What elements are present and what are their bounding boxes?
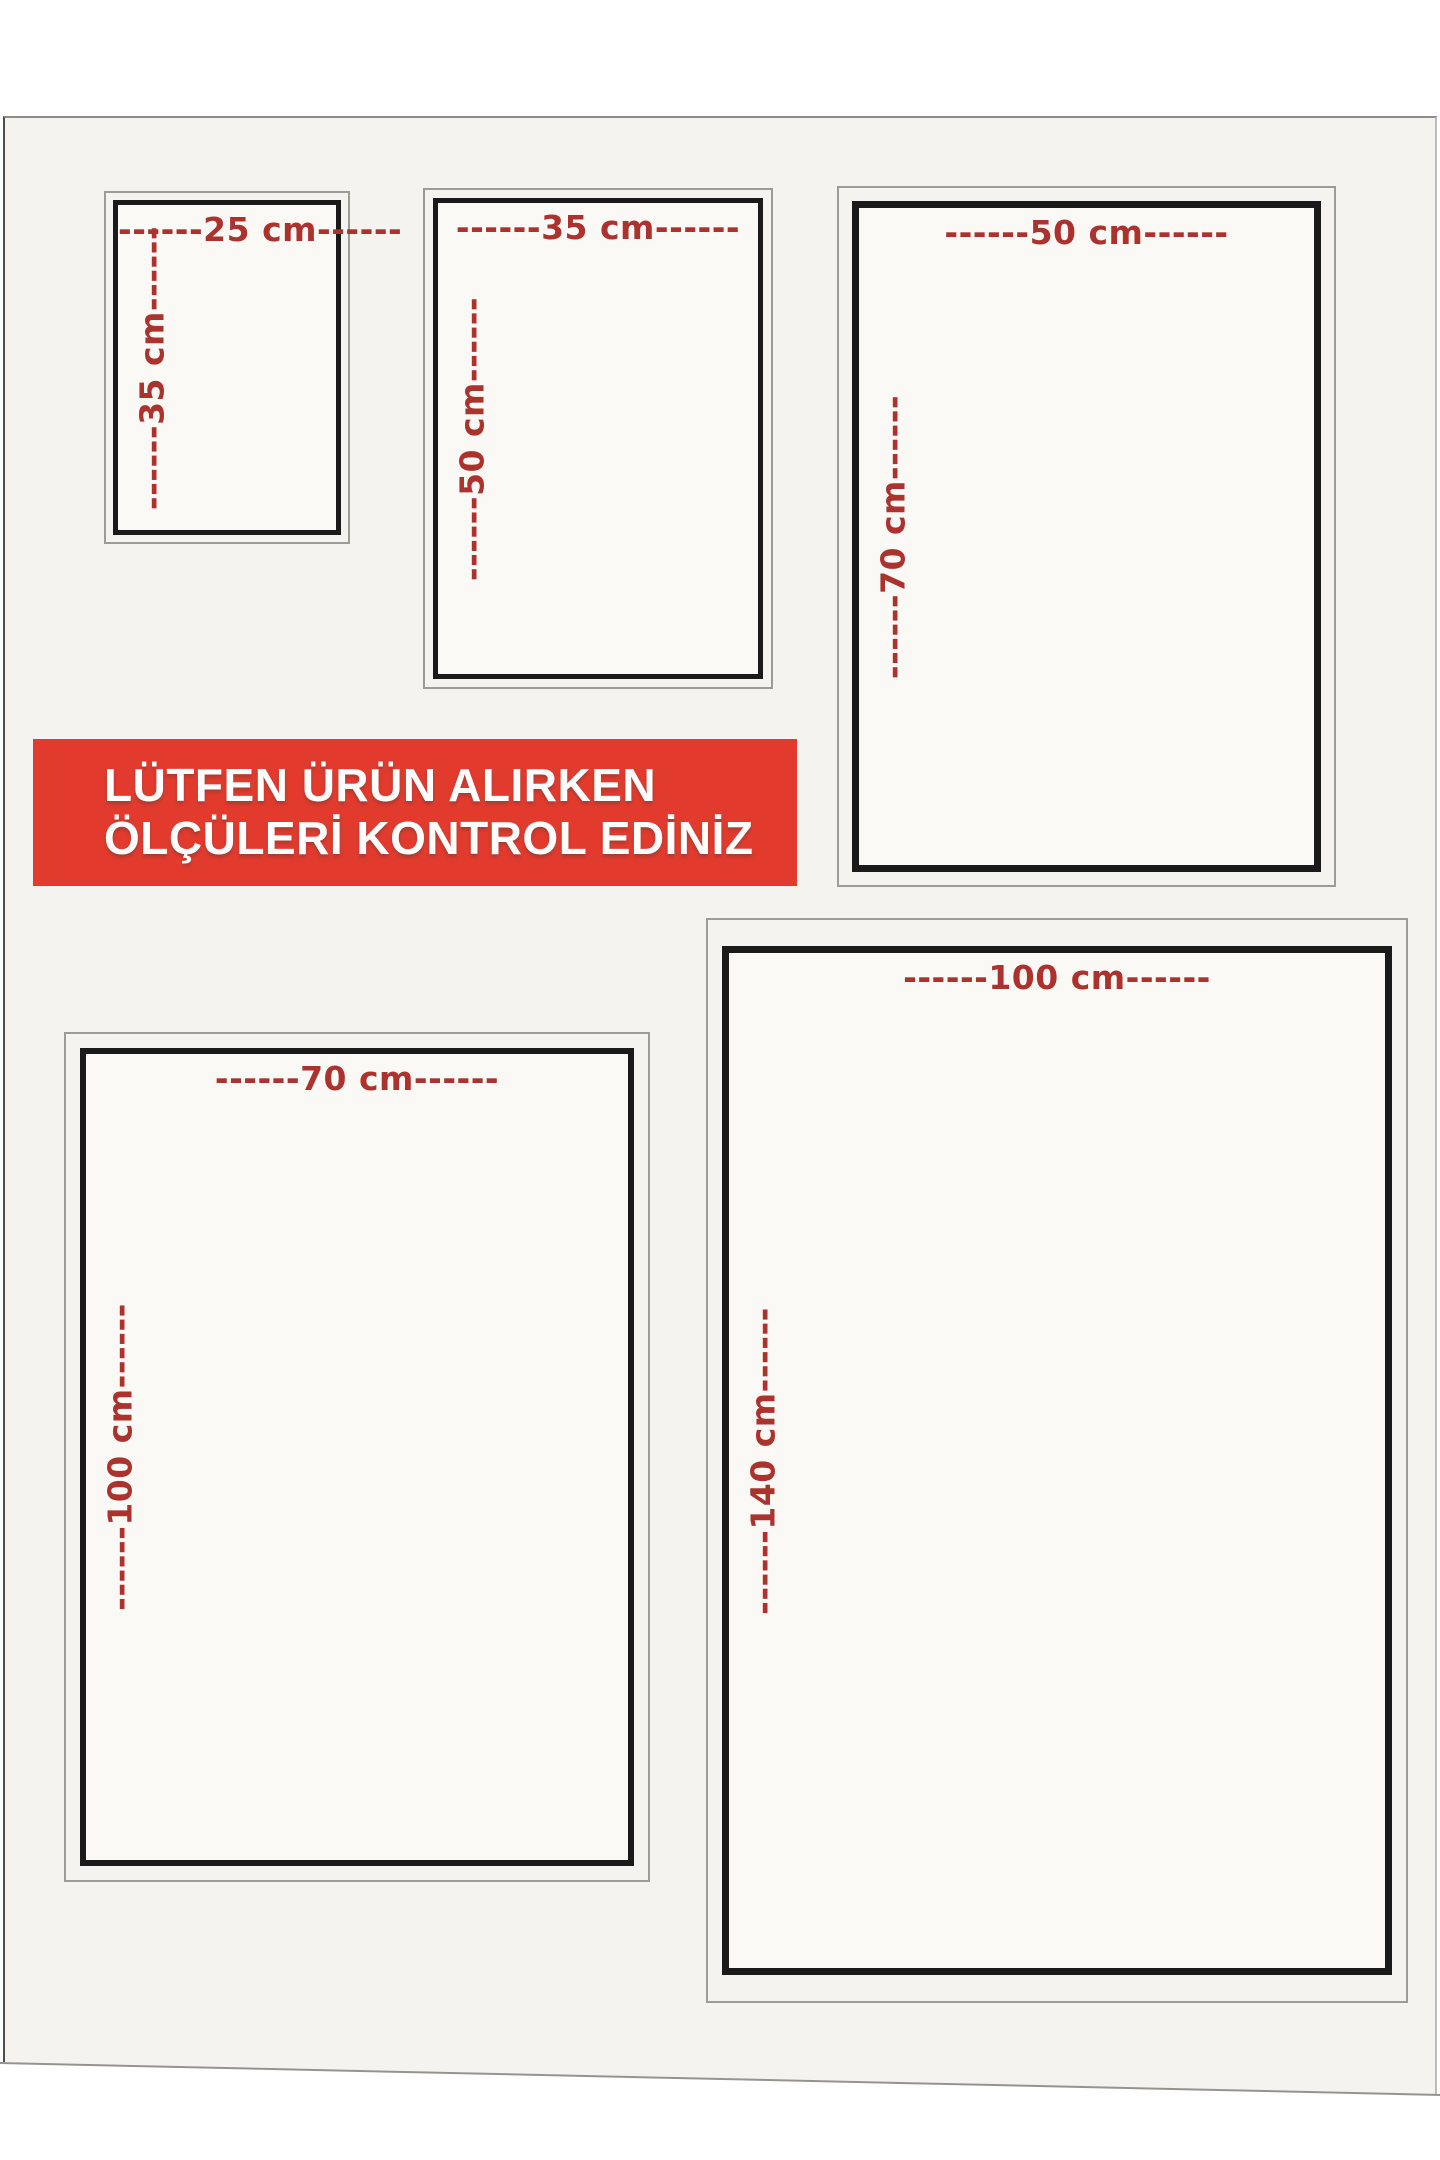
height-label: ------50 cm------ — [453, 296, 492, 580]
width-label: ------35 cm------ — [438, 203, 758, 247]
warning-line-1: LÜTFEN ÜRÜN ALIRKEN — [104, 759, 797, 812]
size-box-50x70: ------50 cm------ ------70 cm------ — [837, 186, 1336, 887]
height-label: ------140 cm------ — [744, 1307, 783, 1615]
height-label: ------100 cm------ — [101, 1303, 140, 1611]
size-box-frame: ------25 cm------ ------35 cm------ — [113, 200, 341, 535]
size-box-25x35: ------25 cm------ ------35 cm------ — [104, 191, 350, 544]
width-label: ------100 cm------ — [729, 953, 1385, 997]
measurement-warning-banner: LÜTFEN ÜRÜN ALIRKEN ÖLÇÜLERİ KONTROL EDİ… — [33, 739, 797, 886]
size-box-frame: ------50 cm------ ------70 cm------ — [852, 201, 1321, 872]
size-box-frame: ------35 cm------ ------50 cm------ — [433, 198, 763, 679]
size-box-100x140: ------100 cm------ ------140 cm------ — [706, 918, 1408, 2003]
height-label: ------35 cm------ — [133, 225, 172, 509]
size-box-35x50: ------35 cm------ ------50 cm------ — [423, 188, 773, 689]
width-label: ------70 cm------ — [86, 1054, 628, 1098]
height-label: ------70 cm------ — [874, 394, 913, 678]
size-chart-poster: ------25 cm------ ------35 cm------ ----… — [0, 0, 1440, 2160]
size-box-frame: ------100 cm------ ------140 cm------ — [722, 946, 1392, 1975]
size-box-70x100: ------70 cm------ ------100 cm------ — [64, 1032, 650, 1882]
warning-line-2: ÖLÇÜLERİ KONTROL EDİNİZ — [104, 812, 797, 865]
width-label: ------50 cm------ — [859, 208, 1314, 252]
size-box-frame: ------70 cm------ ------100 cm------ — [80, 1048, 634, 1866]
